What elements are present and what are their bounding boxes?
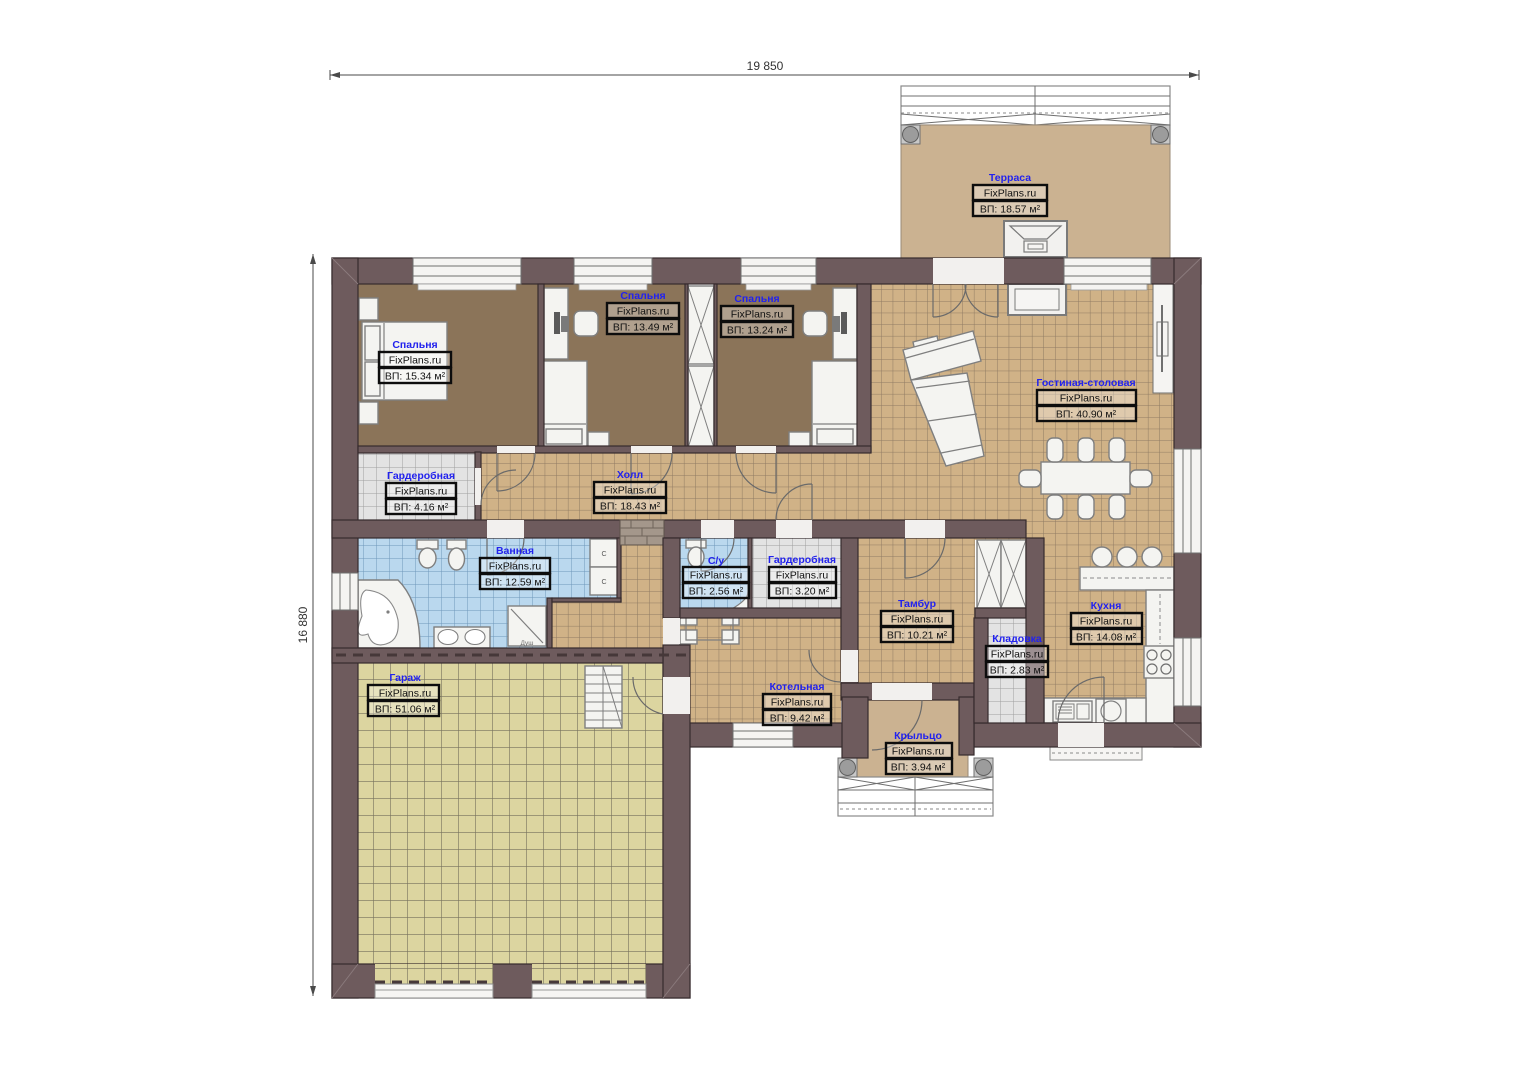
svg-text:ВП: 13.24 м²: ВП: 13.24 м² xyxy=(727,325,788,337)
svg-text:FixPlans.ru: FixPlans.ru xyxy=(771,697,824,709)
svg-text:ВП: 51.06 м²: ВП: 51.06 м² xyxy=(375,704,436,716)
svg-text:FixPlans.ru: FixPlans.ru xyxy=(891,614,944,626)
svg-text:FixPlans.ru: FixPlans.ru xyxy=(379,688,432,700)
svg-text:FixPlans.ru: FixPlans.ru xyxy=(1060,393,1113,405)
svg-text:Спальня: Спальня xyxy=(392,339,437,351)
svg-text:Терраса: Терраса xyxy=(989,172,1031,184)
svg-text:FixPlans.ru: FixPlans.ru xyxy=(984,188,1037,200)
svg-text:С/у: С/у xyxy=(708,555,725,567)
svg-text:Гараж: Гараж xyxy=(389,672,421,684)
svg-text:ВП: 18.57 м²: ВП: 18.57 м² xyxy=(980,204,1041,216)
svg-text:ВП: 2.83 м²: ВП: 2.83 м² xyxy=(990,665,1045,677)
svg-text:ВП: 9.42 м²: ВП: 9.42 м² xyxy=(770,713,825,725)
svg-text:Ванная: Ванная xyxy=(496,545,534,557)
svg-text:ВП: 18.43 м²: ВП: 18.43 м² xyxy=(600,501,661,513)
svg-text:ВП: 14.08 м²: ВП: 14.08 м² xyxy=(1076,632,1137,644)
svg-text:ВП: 3.20 м²: ВП: 3.20 м² xyxy=(775,586,830,598)
svg-text:ВП: 4.16 м²: ВП: 4.16 м² xyxy=(394,502,449,514)
svg-text:Кладовка: Кладовка xyxy=(992,633,1042,645)
svg-text:ВП: 3.94 м²: ВП: 3.94 м² xyxy=(891,762,946,774)
svg-text:Холл: Холл xyxy=(617,469,643,481)
svg-text:Спальня: Спальня xyxy=(620,290,665,302)
svg-text:FixPlans.ru: FixPlans.ru xyxy=(690,570,743,582)
svg-text:FixPlans.ru: FixPlans.ru xyxy=(731,309,784,321)
svg-text:FixPlans.ru: FixPlans.ru xyxy=(776,570,829,582)
svg-text:16 880: 16 880 xyxy=(296,606,310,643)
svg-text:ВП: 2.56 м²: ВП: 2.56 м² xyxy=(689,586,744,598)
svg-text:FixPlans.ru: FixPlans.ru xyxy=(604,485,657,497)
svg-text:C: C xyxy=(601,551,606,558)
svg-text:ВП: 15.34 м²: ВП: 15.34 м² xyxy=(385,371,446,383)
svg-text:ВП: 10.21 м²: ВП: 10.21 м² xyxy=(887,630,948,642)
svg-text:Гостиная-столовая: Гостиная-столовая xyxy=(1036,377,1135,389)
svg-text:ВП: 40.90 м²: ВП: 40.90 м² xyxy=(1056,409,1117,421)
svg-text:Котельная: Котельная xyxy=(770,681,825,693)
svg-text:FixPlans.ru: FixPlans.ru xyxy=(395,486,448,498)
svg-text:Крыльцо: Крыльцо xyxy=(894,730,942,742)
svg-text:Гардеробная: Гардеробная xyxy=(387,470,455,482)
svg-text:19 850: 19 850 xyxy=(747,59,784,73)
svg-text:Спальня: Спальня xyxy=(734,293,779,305)
svg-text:FixPlans.ru: FixPlans.ru xyxy=(389,355,442,367)
svg-text:Гардеробная: Гардеробная xyxy=(768,554,836,566)
svg-text:FixPlans.ru: FixPlans.ru xyxy=(489,561,542,573)
svg-text:Душ: Душ xyxy=(520,640,533,647)
svg-text:Тамбур: Тамбур xyxy=(898,598,936,610)
svg-text:FixPlans.ru: FixPlans.ru xyxy=(617,306,670,318)
svg-text:Кухня: Кухня xyxy=(1091,600,1122,612)
svg-text:FixPlans.ru: FixPlans.ru xyxy=(991,649,1044,661)
svg-text:C: C xyxy=(601,579,606,586)
svg-text:ВП: 13.49 м²: ВП: 13.49 м² xyxy=(613,322,674,334)
svg-text:ВП: 12.59 м²: ВП: 12.59 м² xyxy=(485,577,546,589)
svg-text:FixPlans.ru: FixPlans.ru xyxy=(892,746,945,758)
svg-text:FixPlans.ru: FixPlans.ru xyxy=(1080,616,1133,628)
